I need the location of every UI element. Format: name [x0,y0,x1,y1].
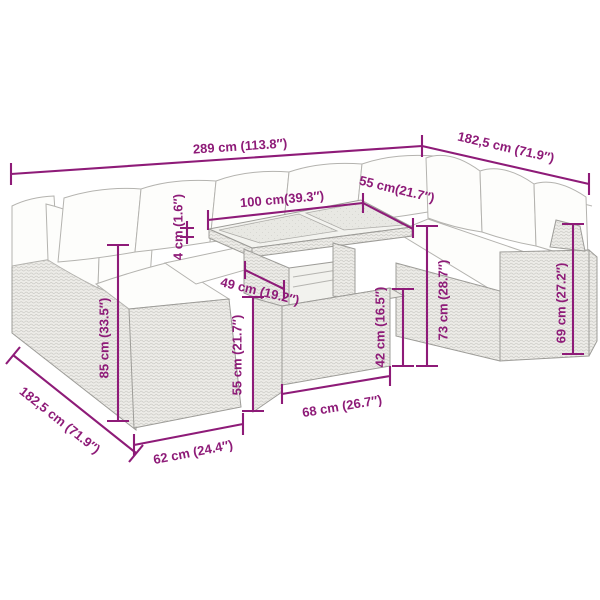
right-armrest-outer-edge [589,250,597,356]
back-cushion [58,188,141,262]
dim-tabletop-thickness-label: 4 cm (1.6″) [171,194,186,260]
dim-module-width-label: 62 cm (24.4″) [152,437,234,467]
stool-front-panel [253,298,282,412]
right-wing-back-cushion [480,169,536,246]
dim-right-wing-depth-label: 182,5 cm (71.9″) [456,129,556,166]
table-right-leg-panel [333,243,355,301]
dim-overall-width-label: 289 cm (113.8″) [192,135,287,156]
diagram-svg: 289 cm (113.8″) 182,5 cm (71.9″) 100 cm(… [0,0,600,600]
dim-seat-height-label: 73 cm (28.7″) [436,260,451,341]
dimension-diagram: 289 cm (113.8″) 182,5 cm (71.9″) 100 cm(… [0,0,600,600]
dim-ottoman-height-label: 42 cm (16.5″) [373,287,388,368]
left-module-front-panel [129,299,241,428]
dim-stool-height-label: 55 cm (21.7″) [230,315,245,396]
dim-ottoman-width-label: 68 cm (26.7″) [301,392,383,420]
right-armrest-panel [500,250,589,361]
dim-armrest-height-label: 69 cm (27.2″) [554,263,569,344]
dim-backrest-height-label: 85 cm (33.5″) [97,298,112,379]
